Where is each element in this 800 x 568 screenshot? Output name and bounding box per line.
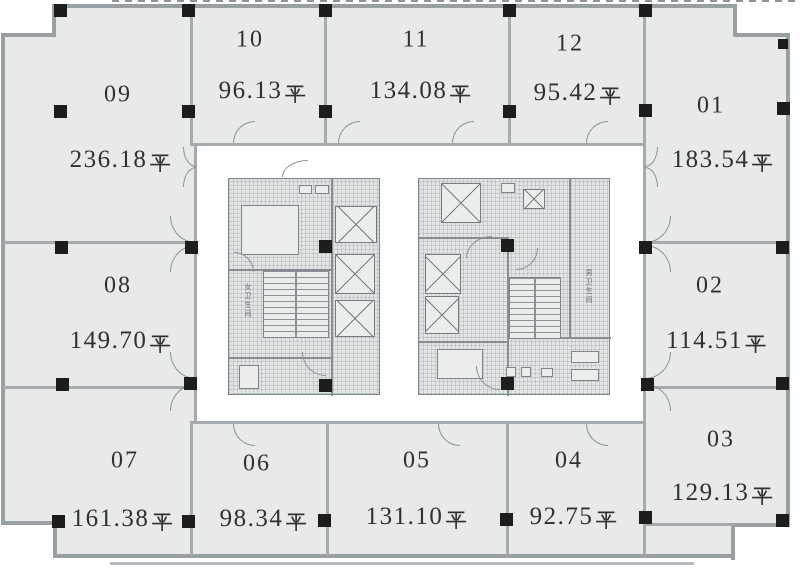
unit-06-area: 98.34 — [220, 505, 307, 533]
unit-08-area: 149.70 — [70, 327, 171, 355]
unit-02-area: 114.51 — [666, 327, 766, 355]
unit-03-number: 03 — [707, 427, 735, 454]
wall — [3, 241, 197, 244]
sqm-unit-icon — [595, 507, 616, 530]
area-value: 96.13 — [219, 77, 283, 105]
unit-02-number: 02 — [696, 273, 724, 300]
unit-04-area: 92.75 — [530, 503, 617, 531]
equipment-room — [241, 205, 299, 255]
column-marker — [501, 239, 514, 252]
core-right: 男卫生间 — [418, 178, 610, 395]
unit-07-number: 07 — [111, 448, 139, 475]
sqm-unit-icon — [449, 81, 470, 104]
unit-10-number: 10 — [236, 27, 264, 54]
column-marker — [54, 105, 67, 118]
sqm-unit-icon — [149, 331, 170, 354]
sqm-unit-icon — [751, 483, 772, 506]
unit-06-number: 06 — [243, 451, 271, 478]
wall — [643, 6, 646, 145]
elevator-shaft-icon — [441, 183, 481, 223]
elevator-shaft-icon — [335, 206, 377, 243]
unit-11-area: 134.08 — [370, 77, 471, 105]
column-marker — [639, 511, 652, 524]
area-value: 98.34 — [220, 505, 284, 533]
fixture — [506, 367, 516, 377]
column-marker — [639, 4, 652, 17]
unit-01-area: 183.54 — [672, 146, 773, 174]
elevator-shaft-icon — [335, 300, 375, 337]
elevator-shaft-icon — [425, 296, 459, 334]
fixture — [501, 183, 515, 193]
wall — [643, 422, 646, 556]
wall — [508, 6, 511, 145]
column-marker — [639, 241, 652, 254]
column-marker — [641, 378, 654, 391]
column-marker — [319, 379, 332, 392]
column-marker — [318, 514, 331, 527]
unit-12-area: 95.42 — [534, 79, 621, 107]
core-wall — [331, 179, 333, 396]
outer-wall — [1, 33, 56, 37]
unit-12-number: 12 — [556, 31, 584, 58]
core-wall — [419, 341, 507, 343]
area-value: 95.42 — [534, 79, 598, 107]
unit-04-number: 04 — [555, 448, 583, 475]
unit-11-number: 11 — [402, 27, 429, 54]
column-marker — [182, 105, 195, 118]
sqm-unit-icon — [751, 150, 772, 173]
column-marker — [639, 104, 652, 117]
column-marker — [777, 102, 790, 115]
dimension-line-top — [112, 0, 796, 2]
wall — [190, 143, 646, 146]
sqm-unit-icon — [285, 509, 306, 532]
outer-wall — [733, 33, 790, 37]
fixture — [571, 369, 599, 381]
wall — [643, 523, 733, 526]
wall — [190, 422, 193, 556]
equipment-room — [437, 349, 483, 379]
outer-wall — [52, 4, 737, 8]
womens-restroom-label: 女卫生间 — [243, 283, 252, 319]
column-marker — [319, 240, 332, 253]
column-marker — [185, 241, 198, 254]
column-marker — [55, 241, 68, 254]
wall — [326, 422, 329, 556]
fixture — [299, 185, 312, 194]
column-marker — [319, 105, 332, 118]
column-marker — [184, 377, 197, 390]
column-marker — [52, 515, 65, 528]
unit-01-number: 01 — [697, 93, 725, 120]
area-value: 149.70 — [70, 327, 148, 355]
column-marker — [501, 377, 514, 390]
wall — [643, 386, 788, 389]
fixture — [571, 351, 599, 363]
floor-plan: 女卫生间 男卫生间 — [0, 0, 800, 568]
unit-03-area: 129.13 — [672, 479, 773, 507]
elevator-shaft-icon — [335, 254, 375, 294]
sqm-unit-icon — [745, 331, 766, 354]
area-value: 183.54 — [672, 146, 750, 174]
sqm-unit-icon — [149, 150, 170, 173]
sqm-unit-icon — [445, 507, 466, 530]
area-value: 161.38 — [72, 505, 150, 533]
wall — [190, 6, 193, 145]
unit-05-number: 05 — [403, 448, 431, 475]
core-wall — [569, 179, 571, 339]
area-value: 114.51 — [666, 327, 743, 355]
column-marker — [182, 515, 195, 528]
core-wall — [419, 237, 509, 239]
elevator-shaft-icon — [425, 254, 461, 294]
unit-08-number: 08 — [104, 273, 132, 300]
fixture — [239, 365, 259, 389]
area-value: 131.10 — [366, 503, 444, 531]
fixture — [521, 367, 531, 377]
unit-09-number: 09 — [104, 82, 132, 109]
wall — [190, 421, 646, 424]
unit-07-area: 161.38 — [72, 505, 173, 533]
area-value: 129.13 — [672, 479, 750, 507]
duct-shaft-icon — [523, 189, 545, 209]
column-marker — [319, 4, 332, 17]
mens-restroom-label: 男卫生间 — [584, 269, 593, 305]
dimension-line-bottom — [110, 562, 694, 565]
column-marker — [54, 4, 67, 17]
sqm-unit-icon — [284, 81, 305, 104]
unit-09-area: 236.18 — [70, 146, 171, 174]
outer-wall — [1, 521, 57, 525]
column-marker — [503, 105, 516, 118]
column-marker — [182, 4, 195, 17]
area-value: 134.08 — [370, 77, 448, 105]
area-value: 92.75 — [530, 503, 594, 531]
column-marker — [776, 514, 789, 527]
stairs-icon — [509, 277, 561, 339]
stairs-icon — [263, 270, 329, 338]
wall — [643, 241, 788, 244]
column-marker — [776, 377, 789, 390]
column-marker — [56, 378, 69, 391]
unit-05-area: 131.10 — [366, 503, 467, 531]
wall — [506, 422, 509, 556]
fixture — [541, 368, 553, 377]
column-marker — [503, 4, 516, 17]
area-value: 236.18 — [70, 146, 148, 174]
sqm-unit-icon — [599, 83, 620, 106]
wall — [324, 6, 327, 145]
fixture — [315, 185, 329, 194]
outer-wall — [1, 33, 5, 525]
column-marker — [500, 513, 513, 526]
wall — [3, 386, 197, 389]
unit-10-area: 96.13 — [219, 77, 306, 105]
column-marker — [778, 39, 788, 49]
sqm-unit-icon — [151, 509, 172, 532]
column-marker — [776, 241, 789, 254]
outer-wall — [53, 554, 735, 558]
